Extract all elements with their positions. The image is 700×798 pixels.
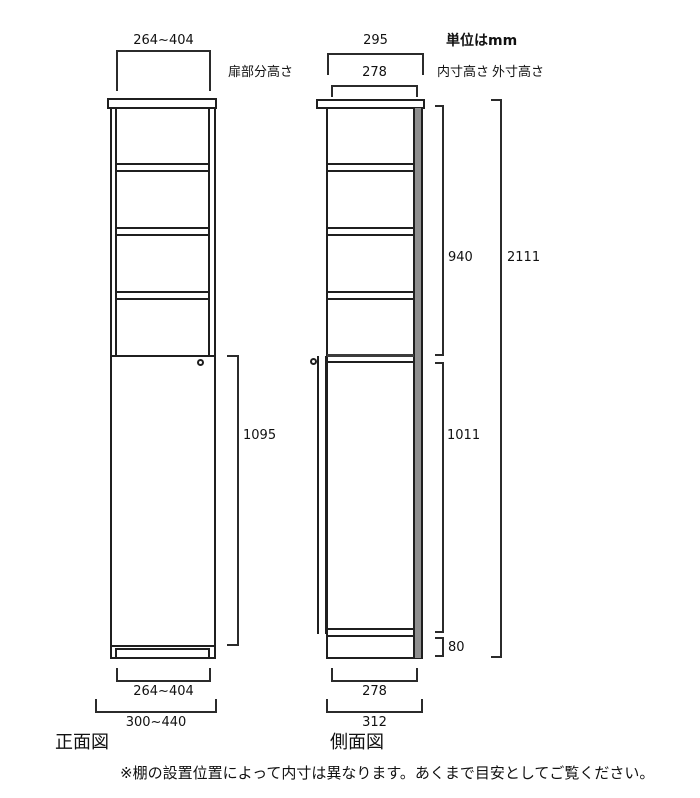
dim-label-side-top-outer-depth: 295 [327,34,424,47]
inner-height-label: 内寸高さ [437,66,489,79]
side-bottom-board [327,628,414,637]
dim-label-upper-inner-height: 940 [448,251,473,264]
front-body-outline [110,107,216,659]
footer-note: ※棚の設置位置によって内寸は異なります。あくまで目安としてご覧ください。 [120,764,654,782]
dim-label-front-door-height: 1095 [243,429,276,442]
dim-label-base-height: 80 [448,641,465,654]
dim-label-front-bottom-outer-width: 300~440 [95,716,217,729]
dim-label-front-top-width: 264~404 [116,34,211,47]
front-door-bottom-line [110,645,216,647]
side-body-outline [326,107,423,659]
dim-bracket-front-top-width [116,50,211,91]
dim-bracket-total-height [491,99,502,658]
dim-bracket-upper-inner-height [435,105,444,356]
units-label: 単位はmm [446,34,517,48]
side-shelf [327,291,414,300]
dim-bracket-base-height [435,637,444,657]
door-section-label: 扉部分高さ [228,66,293,79]
front-shelf [116,163,209,172]
dim-label-front-bottom-inner-width: 264~404 [116,685,211,698]
dim-bracket-side-top-inner-depth [331,85,418,97]
dim-label-side-bottom-inner-depth: 278 [331,685,418,698]
dim-label-total-height: 2111 [507,251,540,264]
side-back-panel [413,108,423,658]
side-door-divider [327,354,414,363]
outer-height-label: 外寸高さ [492,66,544,79]
dim-bracket-front-door-height [227,355,239,646]
side-door-panel [317,356,327,634]
dim-label-side-bottom-outer-depth: 312 [326,716,423,729]
front-view-title: 正面図 [55,734,109,752]
dim-label-side-top-inner-depth: 278 [331,66,418,79]
side-shelf [327,163,414,172]
side-shelf [327,227,414,236]
front-base-panel [115,648,210,659]
dim-bracket-side-bottom-inner-depth [331,668,418,682]
dim-bracket-lower-inner-height [435,362,444,633]
front-door-divider [110,355,216,357]
dim-bracket-front-bottom-inner-width [116,668,211,682]
side-door-knob [310,358,317,365]
side-view-title: 側面図 [330,734,384,752]
dimension-diagram: 264~404 扉部分高さ 1095 264~404 300~440 正面図 [0,0,700,798]
front-shelf [116,291,209,300]
dim-bracket-side-bottom-outer-depth [326,699,423,713]
front-shelf [116,227,209,236]
dim-bracket-front-bottom-outer-width [95,699,217,713]
dim-label-lower-inner-height: 1011 [447,429,480,442]
front-door-knob [197,359,204,366]
